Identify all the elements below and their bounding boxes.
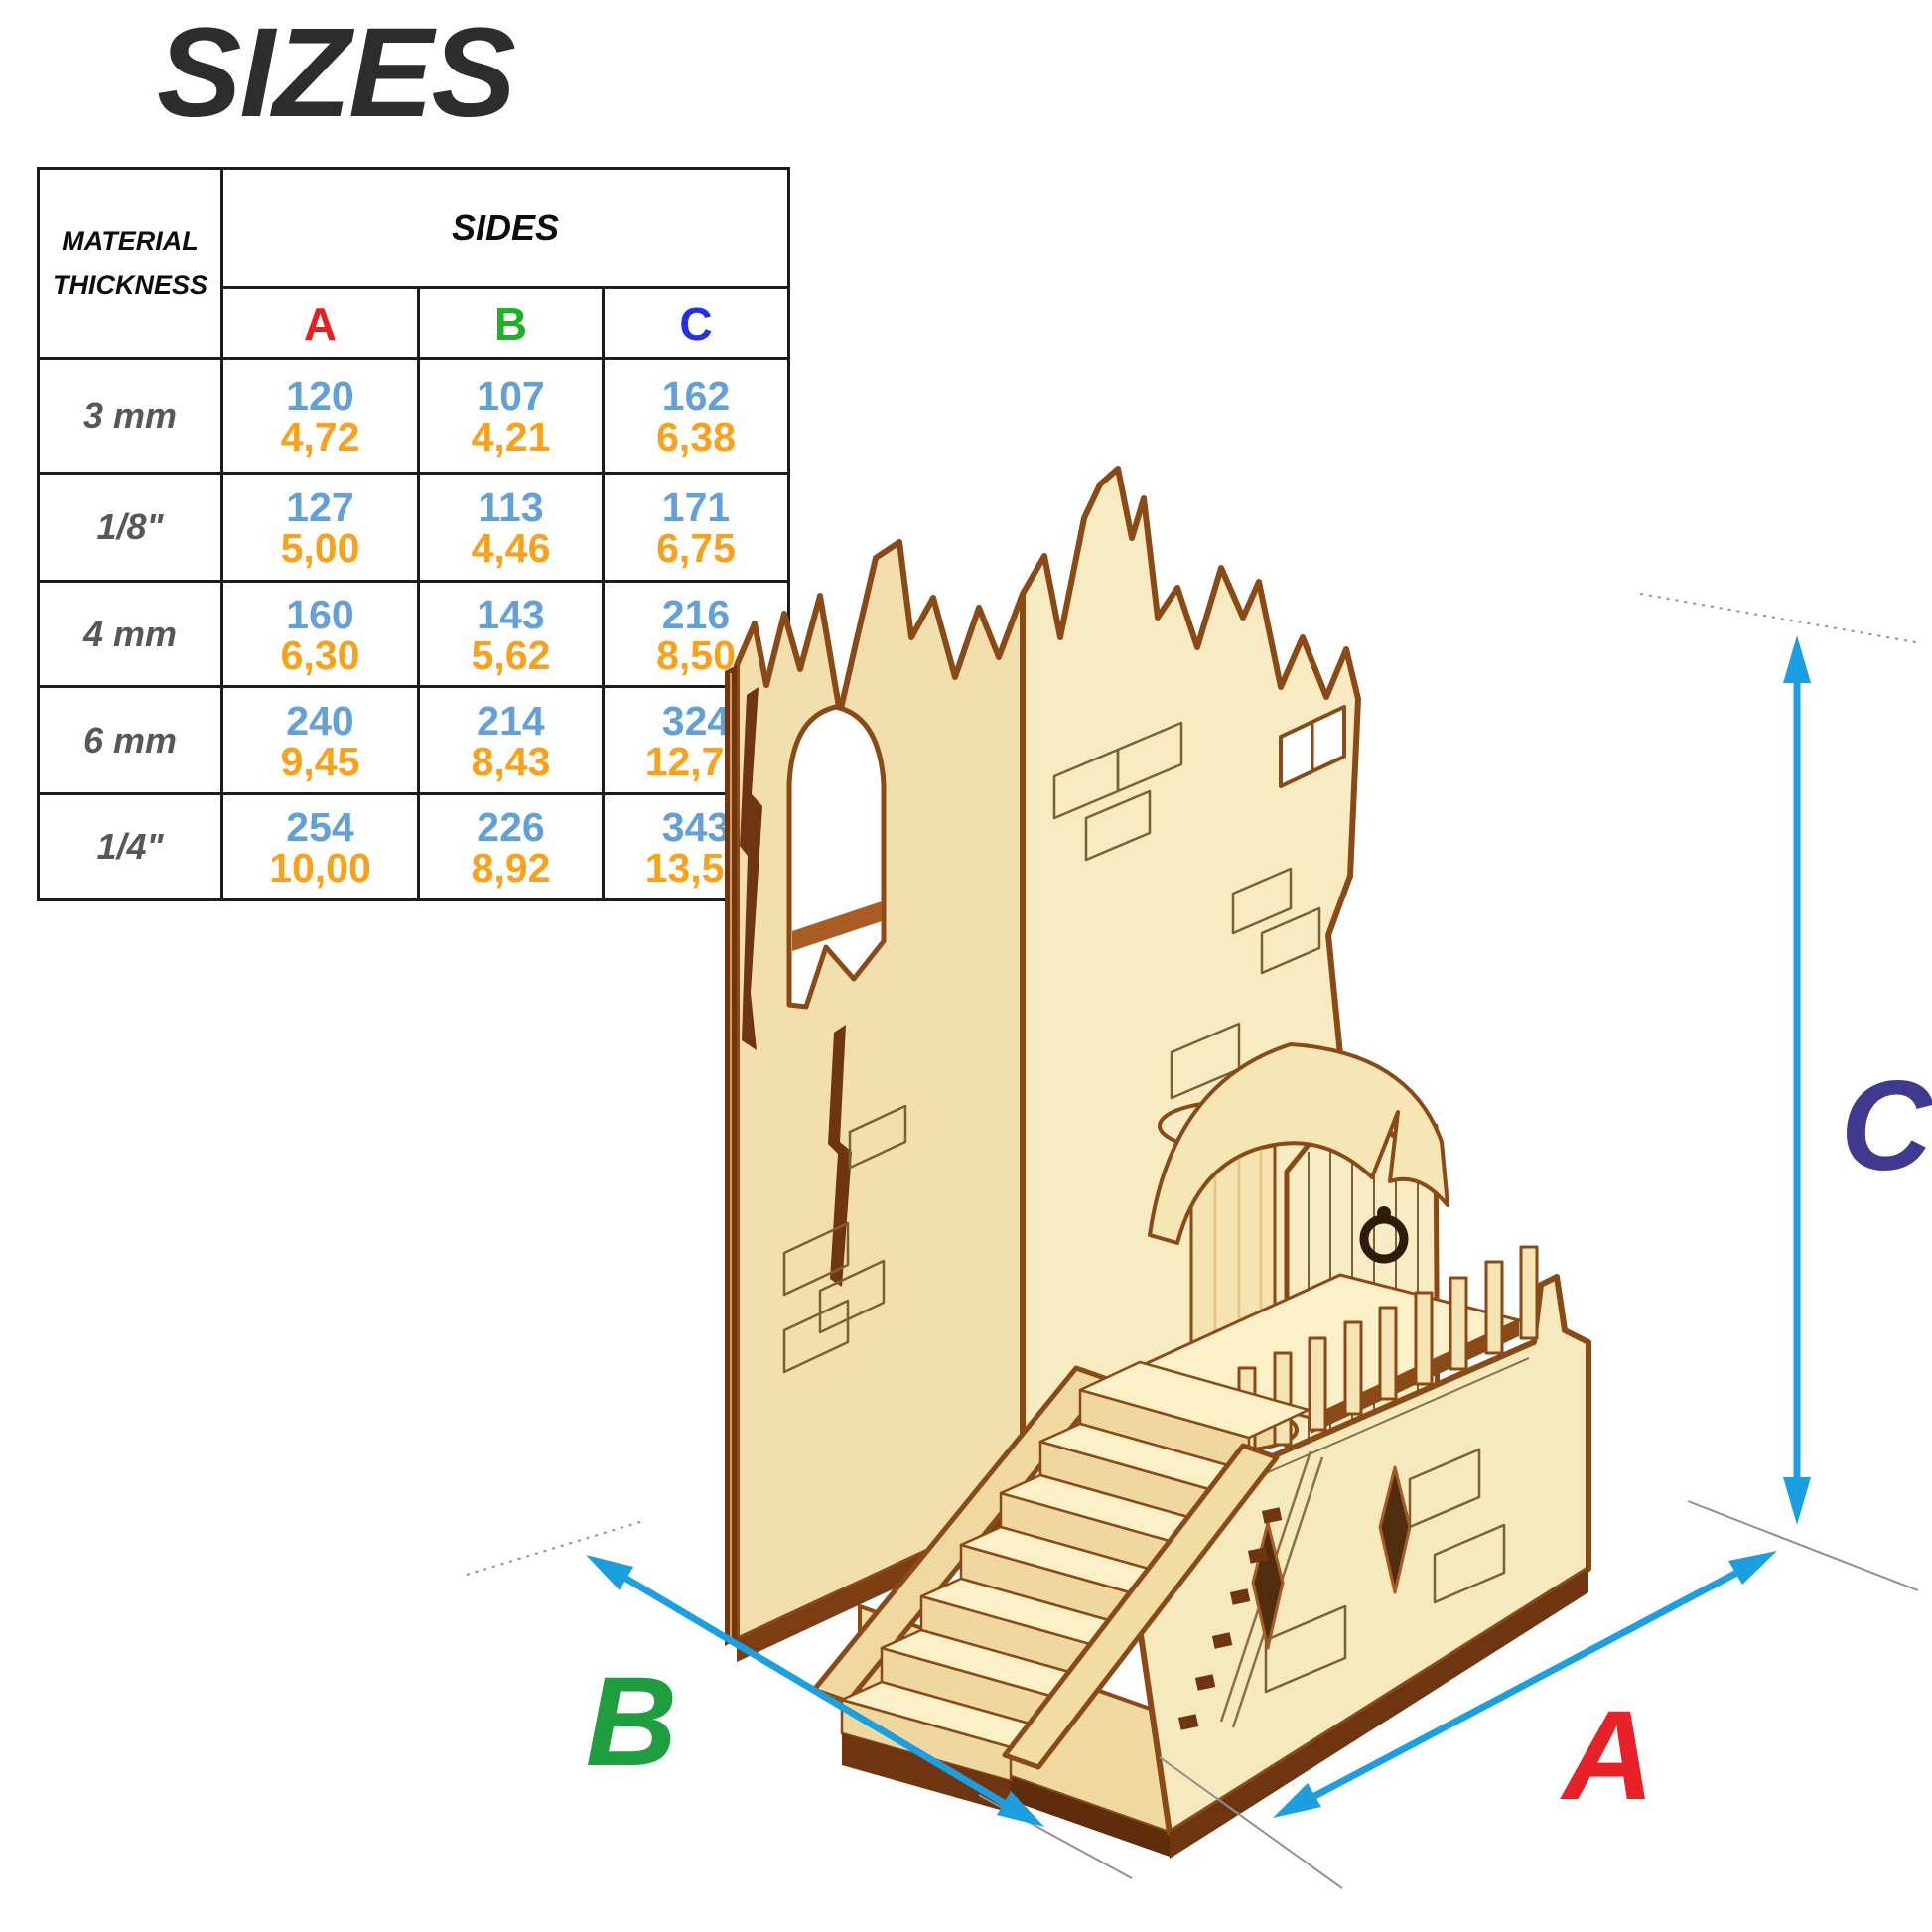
castle-illustration	[725, 469, 1588, 1859]
arrowhead	[586, 1555, 633, 1590]
dimension-label-a: A	[1560, 1685, 1654, 1827]
arrowhead	[1728, 1551, 1777, 1585]
dimension-line-c	[1783, 635, 1811, 1525]
arch-window	[789, 707, 884, 1007]
dimension-label-b: B	[586, 1651, 677, 1793]
dimension-label-c: C	[1841, 1055, 1932, 1197]
arrowhead	[1783, 1477, 1811, 1525]
dimension-illustration: A B C	[0, 0, 1932, 1932]
page: SIZES MATERIAL THICKNESS SIDES A B C 3 m…	[0, 0, 1932, 1932]
arrowhead	[1783, 635, 1811, 683]
